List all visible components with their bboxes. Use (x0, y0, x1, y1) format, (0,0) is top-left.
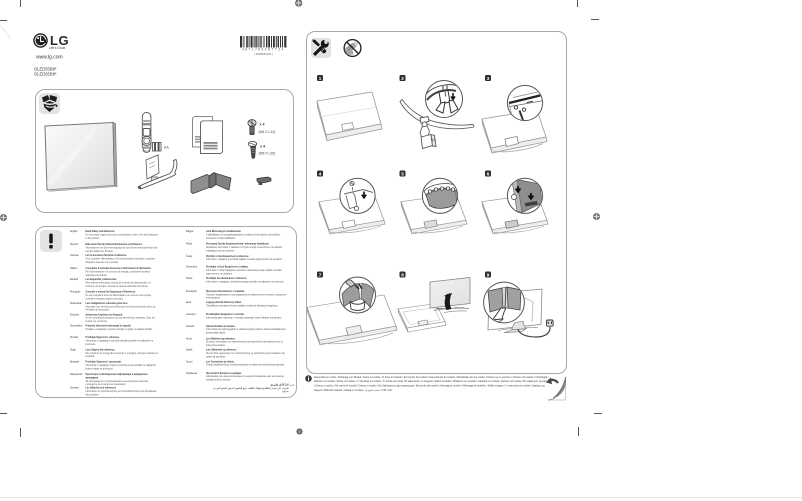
svg-text:1: 1 (319, 76, 322, 81)
svg-text:6: 6 (487, 171, 490, 176)
svg-text:5: 5 (401, 171, 404, 176)
svg-text:( 180608 #01 ): ( 180608 #01 ) (254, 52, 274, 56)
svg-text:48TL7862DTTZ4: 48TL7862DTTZ4 (242, 48, 284, 52)
svg-text:(M4 X L12): (M4 X L12) (259, 130, 276, 134)
svg-text:4: 4 (319, 171, 322, 176)
svg-text:x 4: x 4 (260, 123, 265, 127)
svg-text:2: 2 (401, 76, 404, 81)
svg-text:x 4: x 4 (260, 145, 265, 149)
svg-text:3: 3 (487, 76, 490, 81)
svg-text:9: 9 (487, 272, 490, 277)
svg-text:8: 8 (401, 272, 404, 277)
svg-text:(M5 X L25): (M5 X L25) (259, 152, 276, 156)
svg-text:AA: AA (164, 146, 169, 150)
svg-text:7: 7 (319, 272, 322, 277)
